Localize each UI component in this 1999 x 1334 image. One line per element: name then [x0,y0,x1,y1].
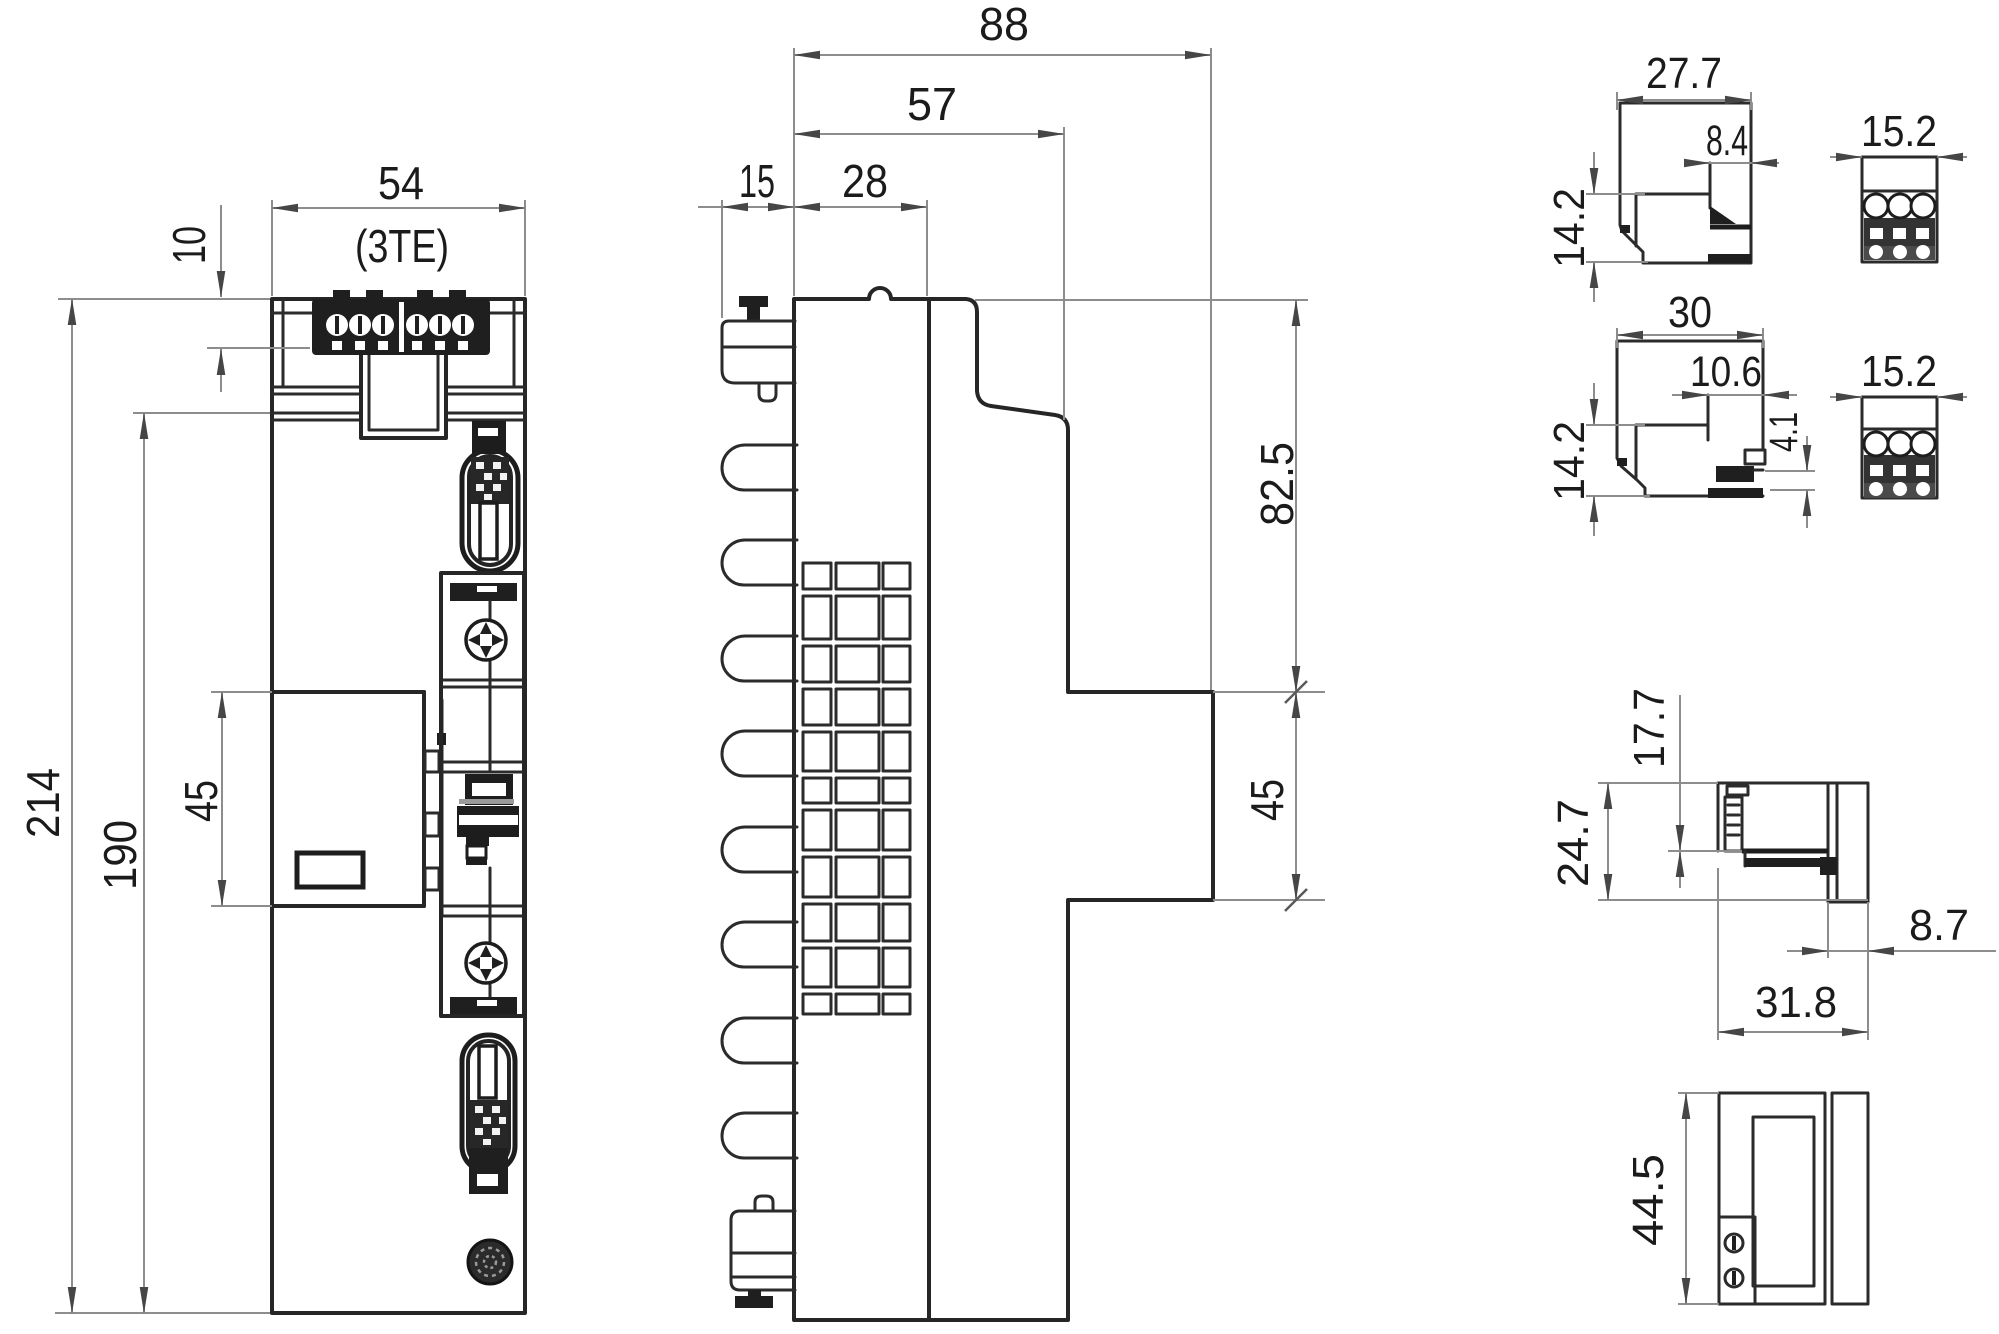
svg-text:54: 54 [378,157,424,209]
svg-text:27.7: 27.7 [1646,49,1722,98]
svg-text:45: 45 [1241,779,1293,821]
svg-text:30: 30 [1668,288,1712,337]
svg-text:15.2: 15.2 [1861,347,1937,396]
svg-text:82.5: 82.5 [1251,442,1303,526]
svg-text:45: 45 [175,780,227,822]
svg-text:15: 15 [739,155,775,207]
svg-text:28: 28 [842,155,888,207]
svg-text:190: 190 [94,820,146,890]
svg-text:88: 88 [979,0,1029,50]
svg-text:(3TE): (3TE) [355,220,449,272]
svg-text:4.1: 4.1 [1762,412,1806,452]
svg-text:214: 214 [17,768,69,838]
svg-text:14.2: 14.2 [1545,188,1594,268]
svg-text:57: 57 [907,78,957,130]
svg-text:15.2: 15.2 [1861,107,1937,156]
svg-text:10.6: 10.6 [1690,348,1762,396]
svg-text:44.5: 44.5 [1624,1154,1673,1246]
svg-text:10: 10 [163,226,215,264]
svg-text:14.2: 14.2 [1545,421,1594,501]
svg-text:8.7: 8.7 [1909,901,1969,950]
svg-text:8.4: 8.4 [1706,117,1748,165]
svg-text:31.8: 31.8 [1755,978,1837,1027]
svg-text:24.7: 24.7 [1549,799,1598,887]
svg-text:17.7: 17.7 [1625,688,1674,768]
